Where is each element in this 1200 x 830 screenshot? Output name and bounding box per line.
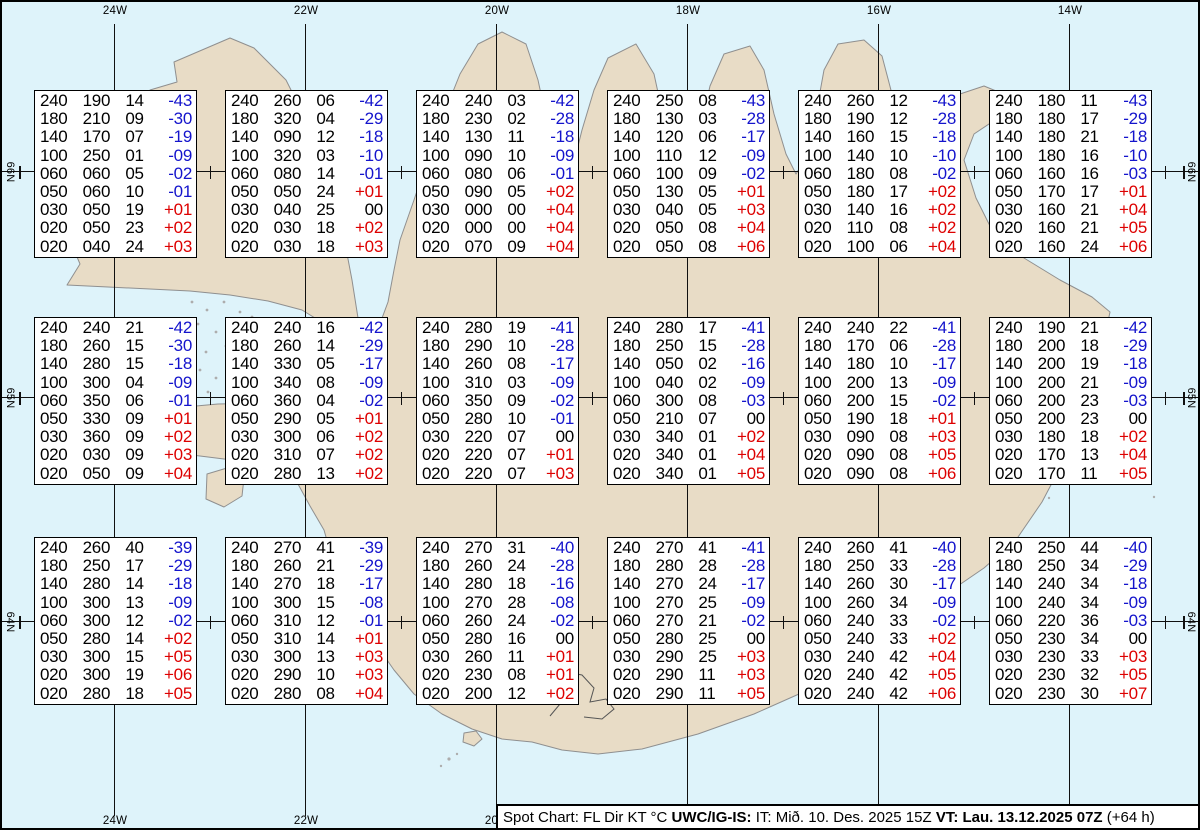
temp-value: +05 <box>159 648 192 666</box>
kt-value: 05 <box>316 410 338 428</box>
dir-value: 300 <box>656 392 687 410</box>
kt-value: 03 <box>698 110 720 128</box>
dir-value: 360 <box>83 428 114 446</box>
dir-value: 230 <box>1038 666 1069 684</box>
dir-value: 200 <box>847 392 878 410</box>
kt-value: 04 <box>316 392 338 410</box>
temp-value: -09 <box>541 147 574 165</box>
dir-value: 180 <box>1038 110 1069 128</box>
temp-value: -18 <box>350 128 383 146</box>
fl-value: 060 <box>995 612 1026 630</box>
dir-value: 160 <box>847 128 878 146</box>
fl-value: 240 <box>422 92 453 110</box>
spot-row: 02029010+03 <box>231 666 383 684</box>
kt-value: 04 <box>316 110 338 128</box>
dir-value: 300 <box>274 594 305 612</box>
kt-value: 15 <box>125 337 147 355</box>
graticule-tick <box>401 392 403 405</box>
spot-row: 02029011+05 <box>613 685 765 703</box>
fl-value: 020 <box>40 446 71 464</box>
fl-value: 050 <box>804 630 835 648</box>
kt-value: 07 <box>507 446 529 464</box>
fl-value: 020 <box>231 446 262 464</box>
temp-value: +03 <box>732 648 765 666</box>
spot-row: 10025001-09 <box>40 147 192 165</box>
fl-value: 240 <box>40 92 71 110</box>
lon-label-top-20W: 20W <box>485 5 509 17</box>
kt-value: 09 <box>125 465 147 483</box>
temp-value: -39 <box>350 539 383 557</box>
spot-row: 24028019-41 <box>422 319 574 337</box>
fl-value: 180 <box>613 110 644 128</box>
dir-value: 190 <box>83 92 114 110</box>
kt-value: 11 <box>698 685 720 703</box>
spot-row: 03024042+04 <box>804 648 956 666</box>
dir-value: 050 <box>274 183 305 201</box>
fl-value: 020 <box>804 446 835 464</box>
dir-value: 230 <box>465 666 496 684</box>
temp-value: -02 <box>732 612 765 630</box>
temp-value: +05 <box>159 685 192 703</box>
fl-value: 030 <box>40 648 71 666</box>
temp-value: -42 <box>159 319 192 337</box>
spot-row: 18026015-30 <box>40 337 192 355</box>
kt-value: 14 <box>125 575 147 593</box>
temp-value: -09 <box>541 374 574 392</box>
fl-value: 020 <box>995 666 1026 684</box>
spot-row: 10034008-09 <box>231 374 383 392</box>
fl-value: 060 <box>40 612 71 630</box>
dir-value: 260 <box>465 557 496 575</box>
spot-row: 02016021+05 <box>995 219 1147 237</box>
spot-row: 02022007+03 <box>422 465 574 483</box>
dir-value: 050 <box>656 238 687 256</box>
footer-segment-bold: UWC/IG-IS: <box>672 809 752 826</box>
temp-value: +04 <box>541 201 574 219</box>
temp-value: -09 <box>350 374 383 392</box>
spot-row: 10032003-10 <box>231 147 383 165</box>
dir-value: 030 <box>274 238 305 256</box>
spot-row: 02017011+05 <box>995 465 1147 483</box>
temp-value: -29 <box>350 337 383 355</box>
fl-value: 020 <box>422 666 453 684</box>
temp-value: +05 <box>1114 666 1147 684</box>
spot-row: 18023002-28 <box>422 110 574 128</box>
kt-value: 13 <box>125 594 147 612</box>
kt-value: 15 <box>698 337 720 355</box>
kt-value: 13 <box>316 465 338 483</box>
spot-box-66N-14W: 24018011-4318018017-2914018021-181001801… <box>989 90 1152 258</box>
spot-row: 03018018+02 <box>995 428 1147 446</box>
spot-row: 10011012-09 <box>613 147 765 165</box>
kt-value: 01 <box>698 465 720 483</box>
dir-value: 260 <box>465 355 496 373</box>
spot-box-66N-20W: 24024003-4218023002-2814013011-181000901… <box>416 90 579 258</box>
fl-value: 180 <box>995 110 1026 128</box>
dir-value: 200 <box>1038 392 1069 410</box>
kt-value: 33 <box>1080 648 1102 666</box>
fl-value: 180 <box>40 110 71 128</box>
fl-value: 180 <box>40 337 71 355</box>
fl-value: 100 <box>40 147 71 165</box>
footer-segment: Spot Chart: FL Dir KT °C <box>503 809 672 826</box>
kt-value: 23 <box>1080 392 1102 410</box>
dir-value: 280 <box>274 685 305 703</box>
kt-value: 09 <box>507 238 529 256</box>
temp-value: -02 <box>159 165 192 183</box>
temp-value: +04 <box>1114 201 1147 219</box>
fl-value: 050 <box>995 183 1026 201</box>
fl-value: 060 <box>231 165 262 183</box>
fl-value: 020 <box>422 446 453 464</box>
spot-row: 05029005+01 <box>231 410 383 428</box>
dir-value: 330 <box>83 410 114 428</box>
kt-value: 06 <box>125 392 147 410</box>
kt-value: 02 <box>507 110 529 128</box>
fl-value: 030 <box>995 201 1026 219</box>
temp-value: +03 <box>732 201 765 219</box>
temp-value: -02 <box>923 392 956 410</box>
fl-value: 020 <box>995 465 1026 483</box>
fl-value: 020 <box>231 666 262 684</box>
dir-value: 290 <box>274 666 305 684</box>
spot-row: 06027021-02 <box>613 612 765 630</box>
temp-value: -03 <box>1114 392 1147 410</box>
kt-value: 34 <box>1080 575 1102 593</box>
dir-value: 260 <box>465 648 496 666</box>
temp-value: -28 <box>541 110 574 128</box>
kt-value: 24 <box>125 238 147 256</box>
spot-row: 0300402500 <box>231 201 383 219</box>
fl-value: 140 <box>422 575 453 593</box>
dir-value: 240 <box>847 648 878 666</box>
fl-value: 020 <box>613 219 644 237</box>
dir-value: 090 <box>847 428 878 446</box>
temp-value: -01 <box>541 165 574 183</box>
fl-value: 180 <box>804 557 835 575</box>
spot-row: 24019014-43 <box>40 92 192 110</box>
dir-value: 090 <box>847 446 878 464</box>
fl-value: 020 <box>40 238 71 256</box>
graticule-tick <box>401 166 403 179</box>
fl-value: 100 <box>422 147 453 165</box>
temp-value: -18 <box>1114 355 1147 373</box>
temp-value: +02 <box>541 685 574 703</box>
dir-value: 220 <box>1038 612 1069 630</box>
kt-value: 08 <box>316 374 338 392</box>
graticule-tick <box>592 392 594 405</box>
kt-value: 03 <box>507 92 529 110</box>
kt-value: 18 <box>125 685 147 703</box>
spot-row: 03030006+02 <box>231 428 383 446</box>
kt-value: 44 <box>1080 539 1102 557</box>
spot-row: 14028018-16 <box>422 575 574 593</box>
spot-row: 14017007-19 <box>40 128 192 146</box>
dir-value: 280 <box>656 557 687 575</box>
dir-value: 180 <box>847 165 878 183</box>
dir-value: 190 <box>847 410 878 428</box>
temp-value: +03 <box>159 238 192 256</box>
lon-label-bottom-22W: 22W <box>294 815 318 827</box>
temp-value: +01 <box>350 410 383 428</box>
temp-value: +04 <box>732 446 765 464</box>
graticule-tick <box>783 392 785 405</box>
dir-value: 250 <box>656 337 687 355</box>
spot-row: 02004024+03 <box>40 238 192 256</box>
fl-value: 060 <box>40 392 71 410</box>
fl-value: 020 <box>613 465 644 483</box>
fl-value: 240 <box>422 319 453 337</box>
spot-row: 24026006-42 <box>231 92 383 110</box>
fl-value: 030 <box>804 428 835 446</box>
temp-value: +03 <box>541 465 574 483</box>
kt-value: 01 <box>125 147 147 165</box>
fl-value: 020 <box>995 219 1026 237</box>
spot-box-65N-22W: 24024016-4218026014-2914033005-171003400… <box>225 317 388 485</box>
temp-value: -40 <box>541 539 574 557</box>
dir-value: 240 <box>83 319 114 337</box>
dir-value: 270 <box>274 539 305 557</box>
kt-value: 06 <box>507 165 529 183</box>
kt-value: 08 <box>698 392 720 410</box>
spot-row: 24018011-43 <box>995 92 1147 110</box>
temp-value: -02 <box>159 612 192 630</box>
fl-value: 240 <box>804 92 835 110</box>
temp-value: +03 <box>159 446 192 464</box>
kt-value: 14 <box>316 630 338 648</box>
spot-row: 24024022-41 <box>804 319 956 337</box>
spot-row: 02017013+04 <box>995 446 1147 464</box>
temp-value: -18 <box>1114 128 1147 146</box>
dir-value: 170 <box>1038 465 1069 483</box>
fl-value: 240 <box>613 319 644 337</box>
dir-value: 240 <box>1038 575 1069 593</box>
dir-value: 190 <box>1038 319 1069 337</box>
dir-value: 290 <box>656 648 687 666</box>
dir-value: 300 <box>83 594 114 612</box>
spot-row: 03000000+04 <box>422 201 574 219</box>
spot-row: 14024034-18 <box>995 575 1147 593</box>
kt-value: 21 <box>1080 319 1102 337</box>
temp-value: -18 <box>1114 575 1147 593</box>
temp-value: -43 <box>923 92 956 110</box>
spot-row: 05031014+01 <box>231 630 383 648</box>
footer-segment: (+64 h) <box>1103 809 1155 826</box>
kt-value: 15 <box>125 648 147 666</box>
temp-value: +03 <box>923 428 956 446</box>
spot-row: 24025008-43 <box>613 92 765 110</box>
fl-value: 140 <box>804 128 835 146</box>
temp-value: +02 <box>350 219 383 237</box>
dir-value: 280 <box>83 355 114 373</box>
lat-label-right-64N: 64N <box>1185 612 1197 633</box>
temp-value: -29 <box>1114 337 1147 355</box>
dir-value: 030 <box>83 446 114 464</box>
spot-row: 24026041-40 <box>804 539 956 557</box>
dir-value: 260 <box>274 92 305 110</box>
graticule-tick <box>19 166 21 179</box>
kt-value: 19 <box>125 666 147 684</box>
fl-value: 100 <box>40 594 71 612</box>
fl-value: 180 <box>613 557 644 575</box>
fl-value: 060 <box>804 612 835 630</box>
dir-value: 260 <box>83 337 114 355</box>
fl-value: 060 <box>231 392 262 410</box>
temp-value: -17 <box>541 355 574 373</box>
fl-value: 020 <box>804 219 835 237</box>
temp-value: 00 <box>350 201 383 219</box>
fl-value: 100 <box>613 594 644 612</box>
kt-value: 11 <box>1080 92 1102 110</box>
temp-value: +02 <box>1114 428 1147 446</box>
kt-value: 14 <box>316 165 338 183</box>
kt-value: 24 <box>507 612 529 630</box>
kt-value: 09 <box>698 165 720 183</box>
fl-value: 100 <box>422 374 453 392</box>
spot-row: 05017017+01 <box>995 183 1147 201</box>
temp-value: +04 <box>350 685 383 703</box>
fl-value: 060 <box>613 165 644 183</box>
fl-value: 050 <box>613 630 644 648</box>
dir-value: 050 <box>83 465 114 483</box>
kt-value: 34 <box>1080 557 1102 575</box>
kt-value: 01 <box>698 428 720 446</box>
temp-value: -03 <box>732 392 765 410</box>
temp-value: -41 <box>732 319 765 337</box>
dir-value: 230 <box>1038 648 1069 666</box>
spot-row: 10030004-09 <box>40 374 192 392</box>
dir-value: 220 <box>465 428 496 446</box>
kt-value: 22 <box>889 319 911 337</box>
lat-label-left-65N: 65N <box>4 388 16 409</box>
fl-value: 060 <box>422 392 453 410</box>
fl-value: 180 <box>995 557 1026 575</box>
kt-value: 13 <box>889 374 911 392</box>
spot-row: 14026030-17 <box>804 575 956 593</box>
dir-value: 040 <box>274 201 305 219</box>
spot-row: 05024033+02 <box>804 630 956 648</box>
fl-value: 240 <box>40 319 71 337</box>
spot-row: 18025033-28 <box>804 557 956 575</box>
dir-value: 240 <box>274 319 305 337</box>
temp-value: +01 <box>159 201 192 219</box>
fl-value: 100 <box>995 374 1026 392</box>
kt-value: 11 <box>1080 465 1102 483</box>
temp-value: -17 <box>923 355 956 373</box>
spot-row: 03029025+03 <box>613 648 765 666</box>
kt-value: 06 <box>316 428 338 446</box>
dir-value: 240 <box>847 685 878 703</box>
spot-row: 14028015-18 <box>40 355 192 373</box>
spot-row: 02028018+05 <box>40 685 192 703</box>
temp-value: +02 <box>923 630 956 648</box>
fl-value: 020 <box>995 446 1026 464</box>
spot-box-64N-16W: 24026041-4018025033-2814026030-171002603… <box>798 537 961 705</box>
fl-value: 140 <box>995 355 1026 373</box>
spot-row: 24019021-42 <box>995 319 1147 337</box>
kt-value: 25 <box>698 630 720 648</box>
temp-value: -02 <box>541 612 574 630</box>
dir-value: 280 <box>656 630 687 648</box>
temp-value: -39 <box>159 539 192 557</box>
spot-row: 18025034-29 <box>995 557 1147 575</box>
temp-value: +06 <box>159 666 192 684</box>
fl-value: 060 <box>804 392 835 410</box>
kt-value: 17 <box>889 183 911 201</box>
kt-value: 18 <box>1080 428 1102 446</box>
fl-value: 030 <box>422 201 453 219</box>
fl-value: 140 <box>40 575 71 593</box>
temp-value: -09 <box>1114 374 1147 392</box>
kt-value: 10 <box>125 183 147 201</box>
temp-value: +03 <box>350 238 383 256</box>
spot-row: 02023032+05 <box>995 666 1147 684</box>
kt-value: 17 <box>1080 110 1102 128</box>
temp-value: +04 <box>541 238 574 256</box>
temp-value: -03 <box>1114 165 1147 183</box>
spot-row: 02005008+06 <box>613 238 765 256</box>
kt-value: 14 <box>125 92 147 110</box>
fl-value: 020 <box>40 465 71 483</box>
fl-value: 100 <box>995 147 1026 165</box>
dir-value: 090 <box>465 183 496 201</box>
fl-value: 030 <box>613 201 644 219</box>
kt-value: 19 <box>125 201 147 219</box>
kt-value: 02 <box>698 355 720 373</box>
spot-row: 24028017-41 <box>613 319 765 337</box>
temp-value: -01 <box>350 165 383 183</box>
fl-value: 030 <box>995 648 1026 666</box>
kt-value: 08 <box>507 666 529 684</box>
spot-row: 18028028-28 <box>613 557 765 575</box>
temp-value: -28 <box>732 337 765 355</box>
spot-row: 02034001+05 <box>613 465 765 483</box>
graticule-tick <box>401 616 403 629</box>
dir-value: 230 <box>1038 685 1069 703</box>
fl-value: 050 <box>231 410 262 428</box>
spot-row: 05009005+02 <box>422 183 574 201</box>
spot-row: 0502100700 <box>613 410 765 428</box>
dir-value: 130 <box>656 183 687 201</box>
temp-value: -17 <box>350 575 383 593</box>
spot-row: 02022007+01 <box>422 446 574 464</box>
spot-row: 02020012+02 <box>422 685 574 703</box>
dir-value: 200 <box>1038 374 1069 392</box>
spot-box-65N-24W: 24024021-4218026015-3014028015-181003000… <box>34 317 197 485</box>
spot-row: 10004002-09 <box>613 374 765 392</box>
spot-row: 0502303400 <box>995 630 1147 648</box>
fl-value: 180 <box>613 337 644 355</box>
fl-value: 140 <box>995 575 1026 593</box>
kt-value: 05 <box>698 183 720 201</box>
spot-row: 02034001+04 <box>613 446 765 464</box>
temp-value: -08 <box>350 594 383 612</box>
spot-row: 14016015-18 <box>804 128 956 146</box>
dir-value: 160 <box>1038 165 1069 183</box>
fl-value: 140 <box>613 128 644 146</box>
spot-row: 02023030+07 <box>995 685 1147 703</box>
fl-value: 060 <box>231 612 262 630</box>
dir-value: 280 <box>656 319 687 337</box>
dir-value: 300 <box>83 612 114 630</box>
spot-row: 02010006+04 <box>804 238 956 256</box>
temp-value: +01 <box>541 446 574 464</box>
fl-value: 030 <box>231 428 262 446</box>
temp-value: -43 <box>159 92 192 110</box>
kt-value: 12 <box>889 110 911 128</box>
graticule-tick <box>974 166 976 179</box>
fl-value: 100 <box>613 374 644 392</box>
